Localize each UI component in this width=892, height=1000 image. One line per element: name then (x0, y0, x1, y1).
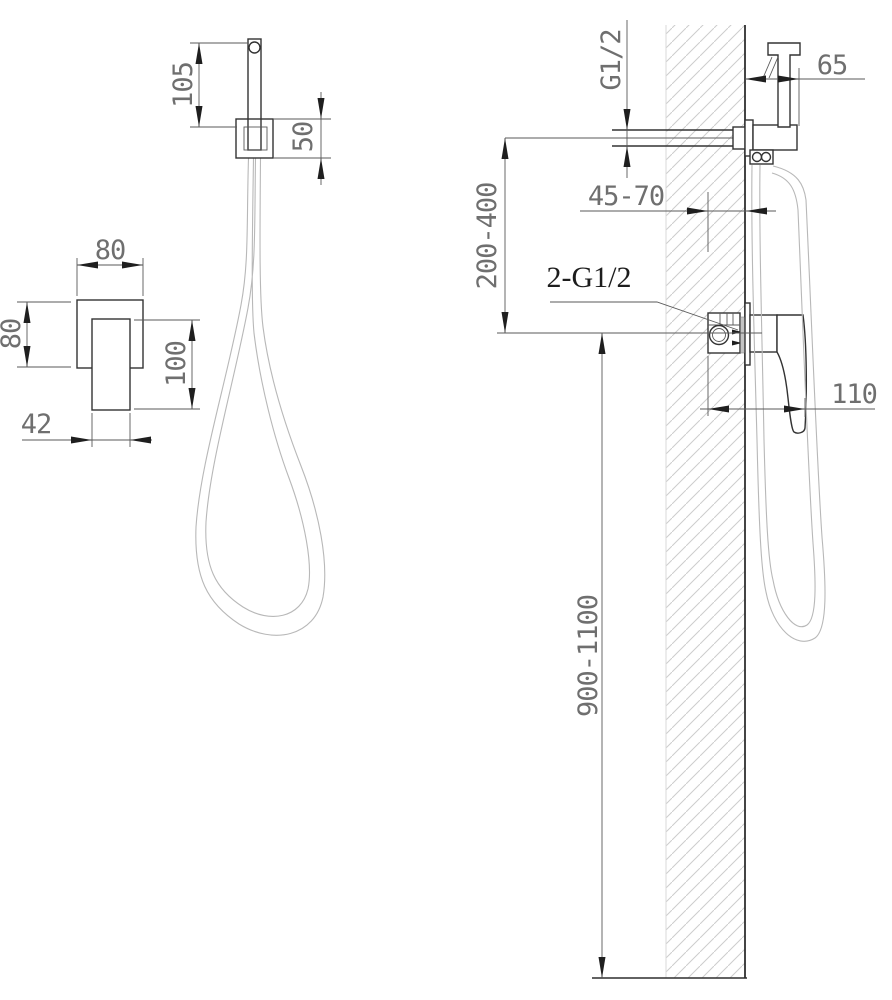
front-view: 105 50 80 80 (0, 39, 331, 635)
arrow-down (502, 312, 509, 333)
valve-handle-lever (777, 315, 806, 433)
pipe-fitting (733, 127, 745, 149)
dim-sprayer-height: 105 (168, 43, 248, 127)
dim-label-80-left: 80 (0, 319, 27, 350)
dim-label-g12: G1/2 (596, 29, 627, 90)
wall-hatch (666, 25, 745, 978)
arrow-down (189, 388, 196, 409)
label-2-g12: 2-G1/2 (547, 261, 632, 294)
dim-label-200-400: 200-400 (472, 183, 503, 290)
valve-escutcheon (745, 303, 750, 365)
arrow-down (318, 98, 325, 119)
dim-plate-width: 80 (77, 235, 143, 296)
arrow-up (196, 43, 203, 64)
arrow-up (318, 158, 325, 179)
sprayer-front (248, 39, 261, 150)
installation-drawing: G1/2 65 45-70 200-400 (0, 0, 892, 1000)
arrow-up (624, 146, 631, 167)
dim-label-100: 100 (161, 341, 192, 387)
dim-label-900-1100: 900-1100 (573, 595, 604, 717)
dim-label-110: 110 (831, 379, 877, 410)
mixer-handle-front (92, 319, 130, 410)
dim-outlet-thread: G1/2 (596, 20, 631, 178)
hose-front-inner (206, 158, 310, 616)
dim-label-45-70: 45-70 (588, 181, 664, 212)
arrow-left (130, 437, 151, 444)
dim-holder-offset: 65 (745, 50, 865, 126)
arrow-up (502, 138, 509, 159)
dim-holder-height: 50 (273, 92, 331, 185)
arrow-left (746, 208, 767, 215)
arrow-down (624, 109, 631, 130)
arrow-down (599, 957, 606, 978)
arrow-up (599, 333, 606, 354)
dim-plate-height: 80 (0, 302, 71, 367)
dim-mixer-height: 900-1100 (573, 333, 606, 978)
dim-label-80-top: 80 (95, 235, 126, 266)
technical-drawing-page: G1/2 65 45-70 200-400 (0, 0, 892, 1000)
side-view: G1/2 65 45-70 200-400 (472, 20, 877, 978)
holder-side (753, 125, 797, 150)
arrow-right (71, 437, 92, 444)
dim-label-65: 65 (817, 50, 848, 81)
dim-handle-length: 100 (134, 320, 200, 409)
hose-front-outer (196, 158, 325, 635)
arrow-down (196, 106, 203, 127)
dim-handle-width: 42 (21, 409, 152, 447)
dim-label-50: 50 (288, 122, 319, 153)
dim-label-42: 42 (21, 409, 52, 440)
arrow-up (189, 320, 196, 341)
arrow-left (745, 76, 766, 83)
dim-label-105: 105 (168, 62, 199, 108)
sprayer-side (768, 43, 800, 127)
